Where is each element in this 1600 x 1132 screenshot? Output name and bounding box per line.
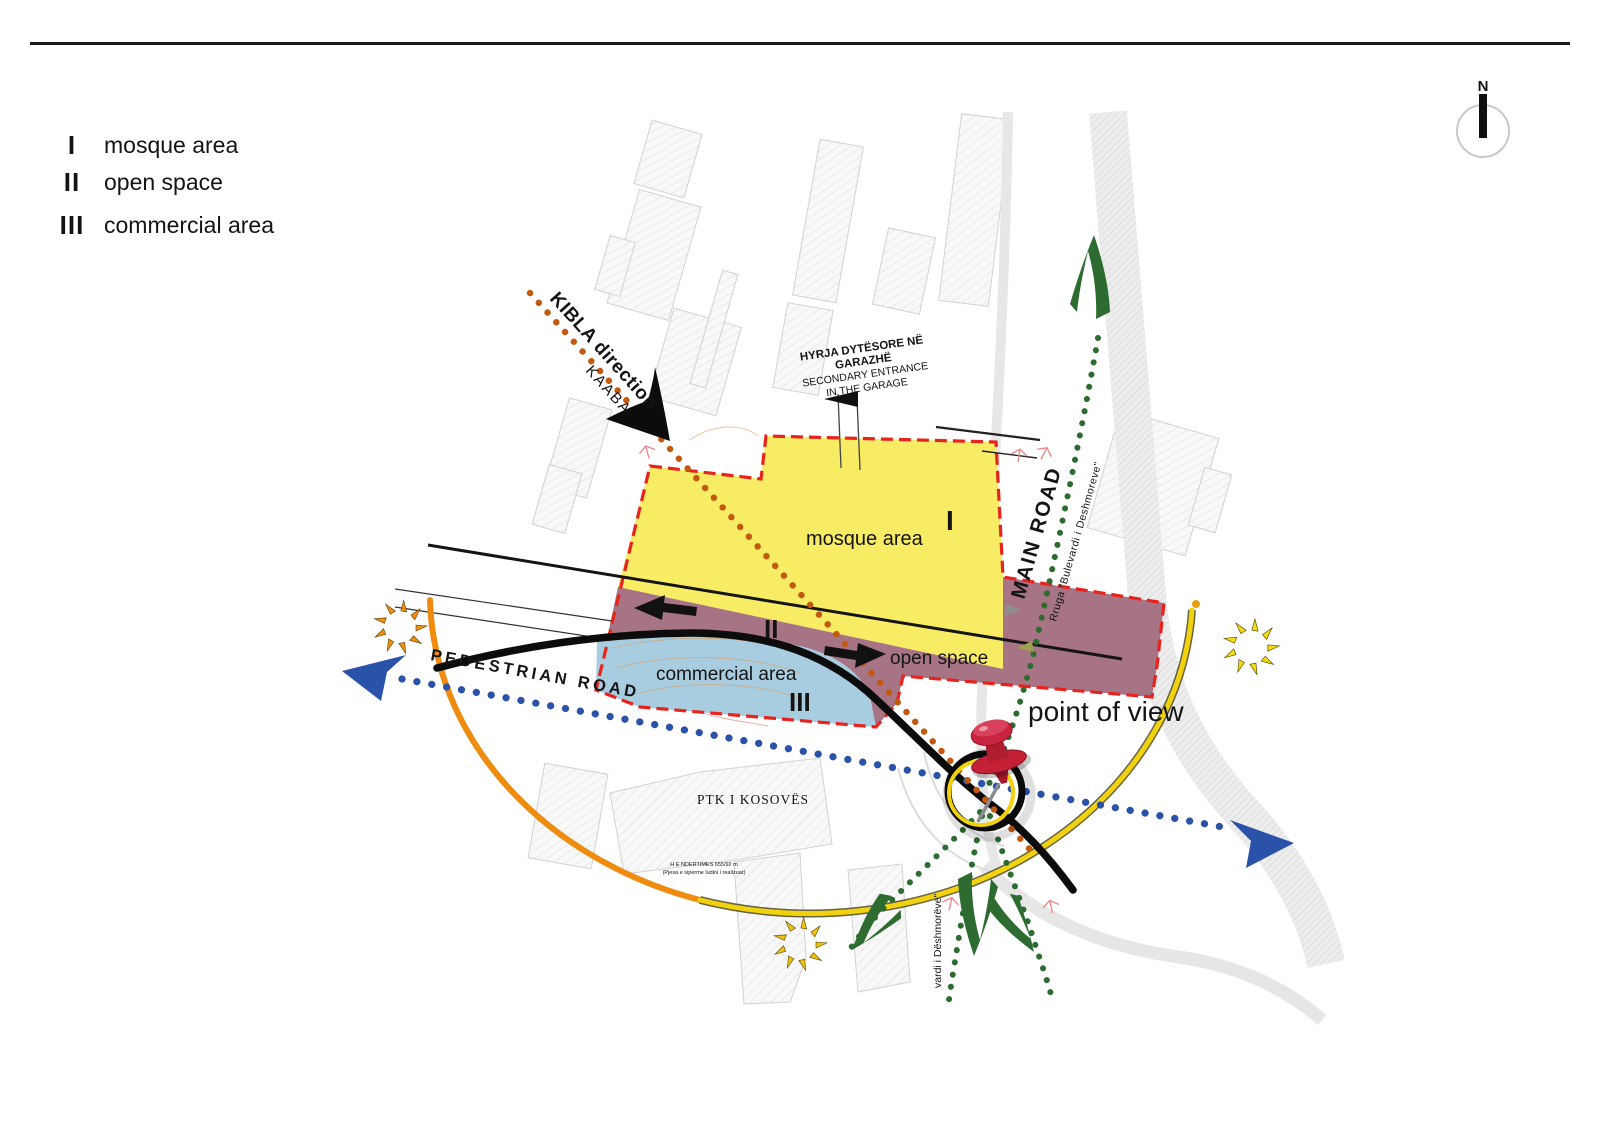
north-label: N bbox=[1478, 78, 1489, 95]
street-line bbox=[395, 607, 606, 639]
street-line bbox=[936, 427, 1040, 440]
ptk-building-label: PTK I KOSOVËS bbox=[697, 792, 809, 807]
site-plan-canvas: mosque area I II open space commercial a… bbox=[0, 0, 1600, 1132]
boulevard-small-label: vardi i Dëshmorëve" bbox=[932, 894, 944, 988]
pink-arrow-icon bbox=[638, 444, 657, 461]
ptk-note-line2: (Pjesa e siperme ludini i realizuar) bbox=[663, 870, 746, 876]
zone-label-commercial: commercial area bbox=[656, 664, 797, 685]
pink-arrow-icon bbox=[1034, 444, 1054, 463]
site-plan-diagram: I mosque area II open space III commerci… bbox=[0, 0, 1600, 1132]
zone-label-open: open space bbox=[890, 648, 988, 669]
sun-icon bbox=[1223, 619, 1279, 676]
zone-numeral-commercial: III bbox=[789, 687, 811, 717]
pink-arrow-icon bbox=[941, 896, 959, 912]
pedestrian-arrow-left-icon bbox=[342, 655, 406, 701]
building-footprint bbox=[634, 120, 702, 198]
zone-numeral-open: II bbox=[764, 614, 778, 644]
zone-label-mosque: mosque area bbox=[806, 528, 924, 550]
building-footprint bbox=[532, 465, 582, 534]
road-band bbox=[1108, 112, 1326, 964]
ptk-note-line1: H E NDERTIMES 655/92 m bbox=[670, 862, 738, 868]
view-arc-tip-dot bbox=[1192, 600, 1200, 608]
building-footprint bbox=[649, 308, 742, 416]
building-footprint bbox=[872, 228, 935, 314]
ptk-building bbox=[848, 864, 910, 992]
north-compass-icon: N bbox=[1457, 78, 1509, 157]
zone-numeral-mosque: I bbox=[946, 505, 954, 536]
building-footprint bbox=[793, 139, 864, 302]
point-of-view-label: point of view bbox=[1028, 696, 1184, 727]
